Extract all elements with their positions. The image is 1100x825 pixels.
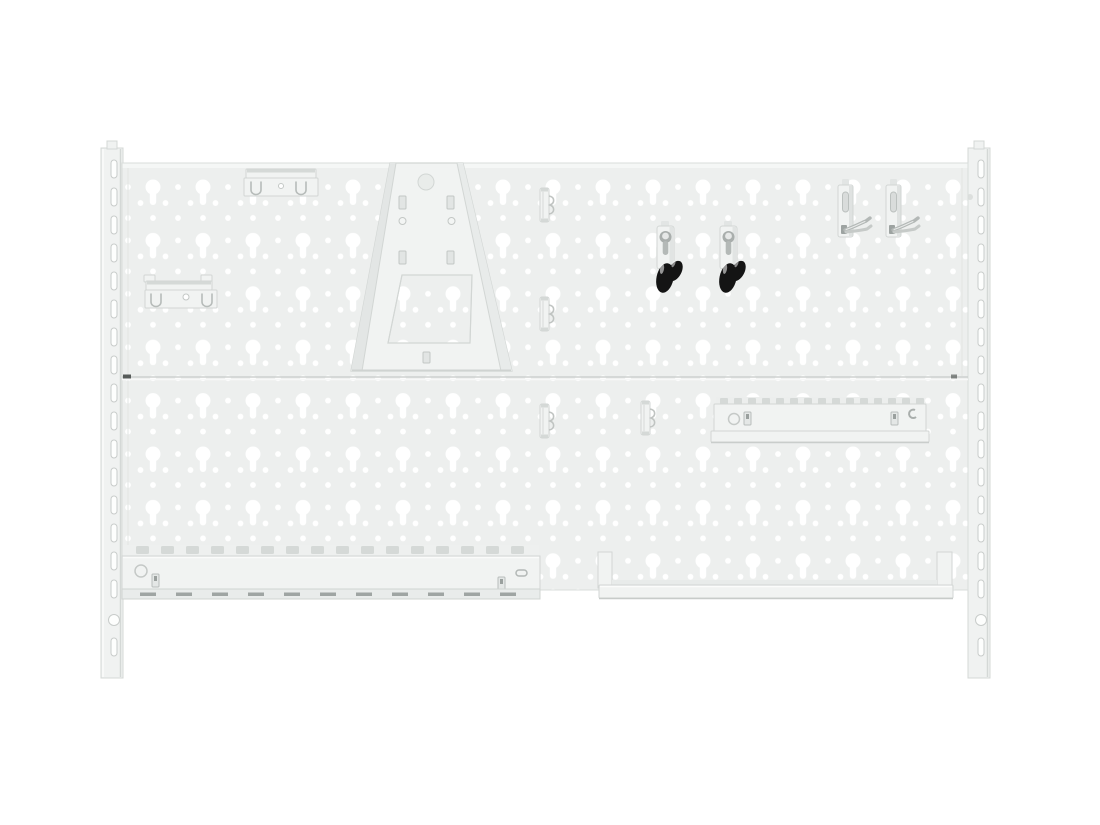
tool-holder-rail (711, 397, 929, 443)
tool-rail-notches (720, 398, 924, 404)
wall-rail-right (967, 141, 990, 678)
wall-rail-left (101, 141, 123, 678)
product-photo-canvas (0, 0, 1100, 825)
pegboard-product-photo (0, 0, 1100, 825)
spring-clip-holder-top (244, 169, 318, 196)
slotted-tool-rail (122, 545, 540, 599)
